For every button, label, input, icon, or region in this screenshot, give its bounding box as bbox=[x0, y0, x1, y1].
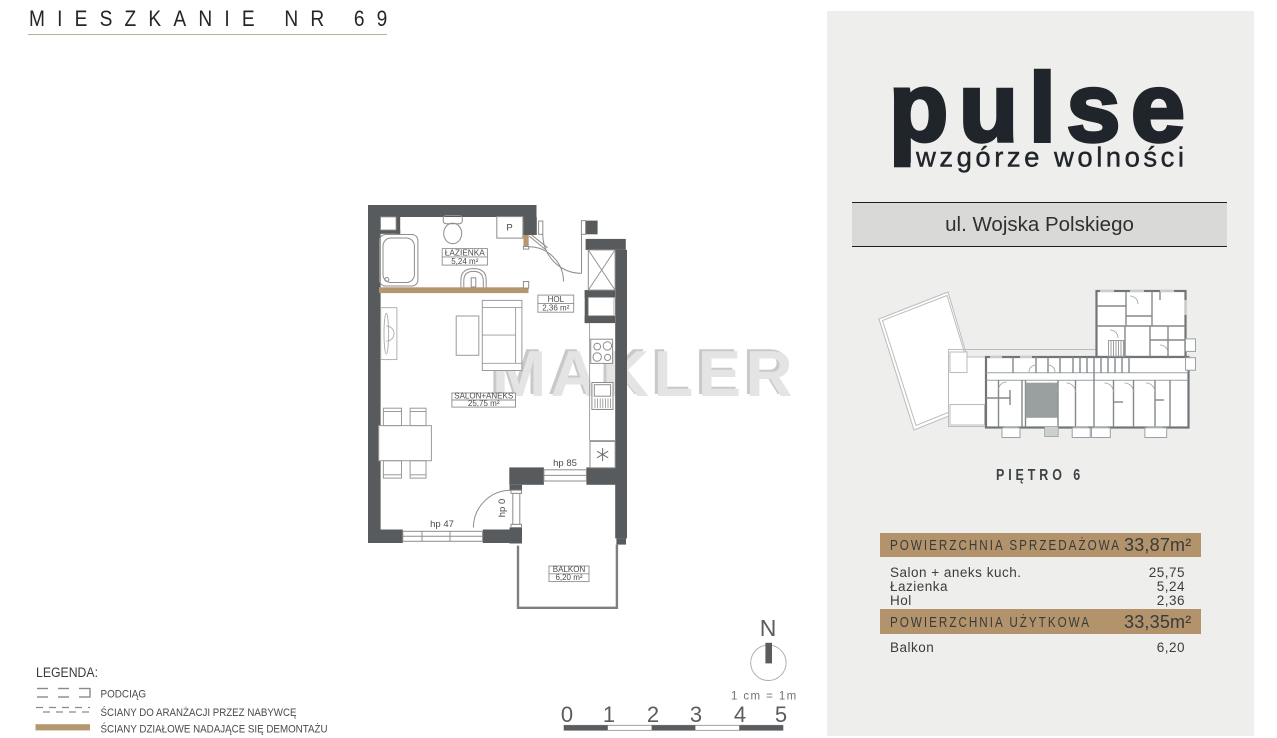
svg-text:4: 4 bbox=[734, 702, 746, 727]
svg-text:hp 0: hp 0 bbox=[497, 499, 508, 518]
svg-text:1: 1 bbox=[603, 702, 615, 727]
svg-text:N: N bbox=[760, 615, 777, 641]
svg-text:2,36 m²: 2,36 m² bbox=[542, 304, 569, 313]
svg-text:25,75 m²: 25,75 m² bbox=[468, 399, 500, 408]
svg-text:0: 0 bbox=[561, 702, 573, 727]
svg-text:5,24 m²: 5,24 m² bbox=[451, 257, 478, 266]
svg-text:wzgórze wolności: wzgórze wolności bbox=[915, 142, 1184, 173]
svg-text:LEGENDA:: LEGENDA: bbox=[36, 665, 98, 680]
svg-text:PODCIĄG: PODCIĄG bbox=[101, 689, 147, 701]
svg-text:5: 5 bbox=[775, 702, 787, 727]
svg-text:ŚCIANY DO ARANŻACJI PRZEZ NABY: ŚCIANY DO ARANŻACJI PRZEZ NABYWCĘ bbox=[101, 706, 297, 719]
svg-text:P: P bbox=[506, 223, 512, 234]
svg-text:3: 3 bbox=[690, 702, 702, 727]
svg-text:6,20 m²: 6,20 m² bbox=[555, 573, 582, 582]
svg-text:1 cm = 1m: 1 cm = 1m bbox=[731, 691, 798, 703]
svg-text:ŚCIANY DZIAŁOWE NADAJĄCE SIĘ D: ŚCIANY DZIAŁOWE NADAJĄCE SIĘ DEMONTAŻU bbox=[101, 722, 328, 735]
svg-text:hp 47: hp 47 bbox=[430, 519, 454, 530]
svg-text:2: 2 bbox=[647, 702, 659, 727]
svg-text:hp 85: hp 85 bbox=[553, 458, 577, 469]
